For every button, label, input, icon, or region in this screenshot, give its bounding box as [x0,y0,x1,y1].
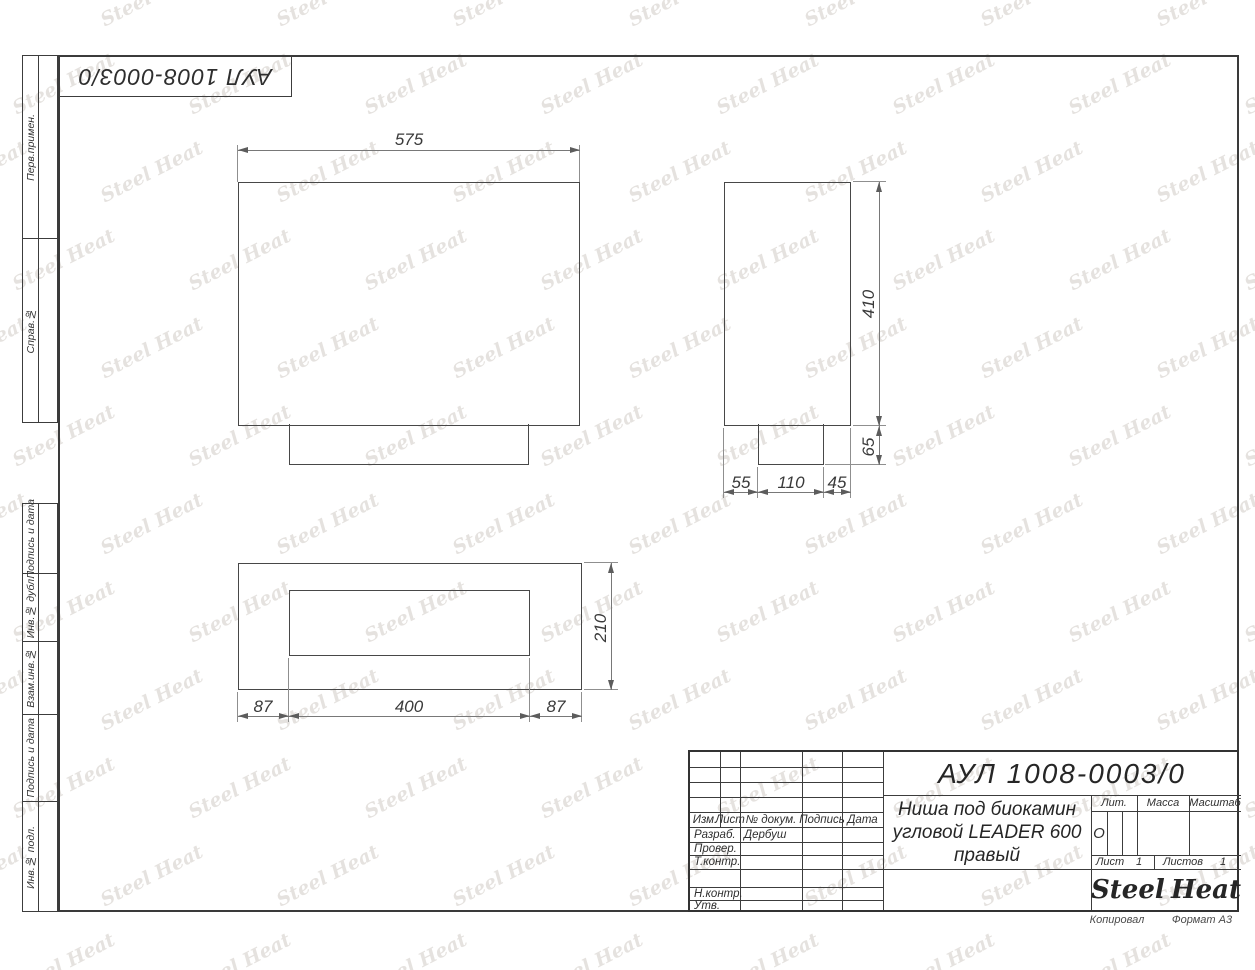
tb-ncontrol-label: Н.контр. [690,887,740,900]
drawing-sheet: Steel HeatSteel HeatSteel HeatSteel Heat… [0,0,1255,970]
dim-text-side-height: 410 [859,280,879,328]
dim-text-plan-mid: 400 [389,697,429,717]
tb-part-name-line2: угловой LEADER 600 [893,821,1082,844]
tb-approved-label: Утв. [690,900,740,912]
tb-developed-label: Разраб. [690,827,740,842]
logo-text-steel: Steel [1091,875,1165,905]
title-block-line [1122,811,1123,855]
margin-label: Подпись и дата [25,718,37,797]
tb-checked-label: Провер. [690,842,740,855]
tb-header-podpis: Подпись [802,812,842,827]
title-block-line [1107,811,1108,855]
rotated-designation-text: АУЛ 1008-0003/0 [78,63,272,90]
tb-developed-name: Дербуш [740,827,802,842]
tb-sheets-value: 1 [1210,855,1236,869]
tb-part-name-line1: Ниша под биокамин [898,798,1076,821]
front-view-body [238,182,580,426]
tb-header-list: Лист [720,812,740,827]
plan-view-opening [289,590,530,656]
margin-cell-sprav-no: Справ.№ [23,238,38,424]
tb-designation: АУЛ 1008-0003/0 [883,752,1241,795]
dim-text-plan-depth: 210 [591,604,611,652]
extension-line [723,428,724,498]
format-label: Формат А3 [1157,914,1247,926]
tb-sheets-label: Листов [1158,855,1208,869]
dim-text-side-mid: 110 [771,473,811,493]
tb-header-dokum: № докум. [740,812,802,827]
margin-label: Инв.№ дубл. [25,576,37,638]
dim-text-plan-left: 87 [248,697,278,717]
title-block-line [690,797,883,798]
margin-box-group-top: Перв.примен. Справ.№ [22,55,58,423]
tb-header-data: Дата [842,812,883,827]
tb-lit-label: Лит. [1091,795,1137,811]
title-block: Изм. Лист № докум. Подпись Дата Разраб. … [688,750,1239,912]
margin-cell-perv-primen: Перв.примен. [23,56,38,238]
title-block-line [1154,855,1155,869]
title-block-line [1091,811,1241,812]
logo-text-heat: Heat [1171,875,1241,905]
dim-text-side-tab-height: 65 [859,430,879,464]
side-view-body [724,182,851,426]
tb-lit-value: О [1091,811,1107,855]
margin-label: Инв.№ подл. [25,826,37,889]
title-block-line [690,782,883,783]
dim-text-side-left: 55 [726,473,756,493]
dim-text-plan-right: 87 [541,697,571,717]
tb-mass-label: Масса [1137,795,1189,811]
margin-cell-podpis-data-2: Подпись и дата [23,714,38,801]
tb-tcontrol-label: Т.контр. [690,855,740,869]
margin-label: Взам.инв.№ [25,648,37,708]
tb-part-name: Ниша под биокамин угловой LEADER 600 пра… [883,795,1091,869]
dim-line-side-height [879,182,880,426]
front-view-base [289,424,529,465]
dim-text-front-width: 575 [379,130,439,150]
copied-label: Копировал [1072,914,1162,926]
margin-cell-vzam-inv: Взам.инв.№ [23,641,38,714]
dim-line-plan-depth [611,563,612,690]
dim-text-side-right: 45 [823,473,851,493]
margin-label: Перв.примен. [25,114,37,181]
tb-sheet-value: 1 [1127,855,1151,869]
margin-label: Подпись и дата [25,499,37,578]
margin-cell-inv-dubl: Инв.№ дубл. [23,573,38,641]
margin-cell-podpis-data-1: Подпись и дата [23,504,38,573]
title-block-line [690,767,883,768]
dim-line-side-tab-height [879,426,880,465]
margin-divider [38,504,39,911]
steelheat-logo: Steel Heat [1091,869,1241,910]
margin-label: Справ.№ [25,308,37,353]
rotated-designation-box: АУЛ 1008-0003/0 [58,55,292,97]
drawing-layer: АУЛ 1008-0003/0 Перв.примен. Справ.№ Под… [0,0,1255,970]
margin-cell-inv-podl: Инв.№ подл. [23,801,38,913]
tb-scale-label: Масштаб [1189,795,1241,811]
tb-sheet-label: Лист [1093,855,1127,869]
side-view-base [758,424,824,465]
margin-box-group-bottom: Подпись и дата Инв.№ дубл. Взам.инв.№ По… [22,503,58,912]
tb-part-name-line3: правый [954,844,1020,867]
dim-line-front-width [238,150,580,151]
